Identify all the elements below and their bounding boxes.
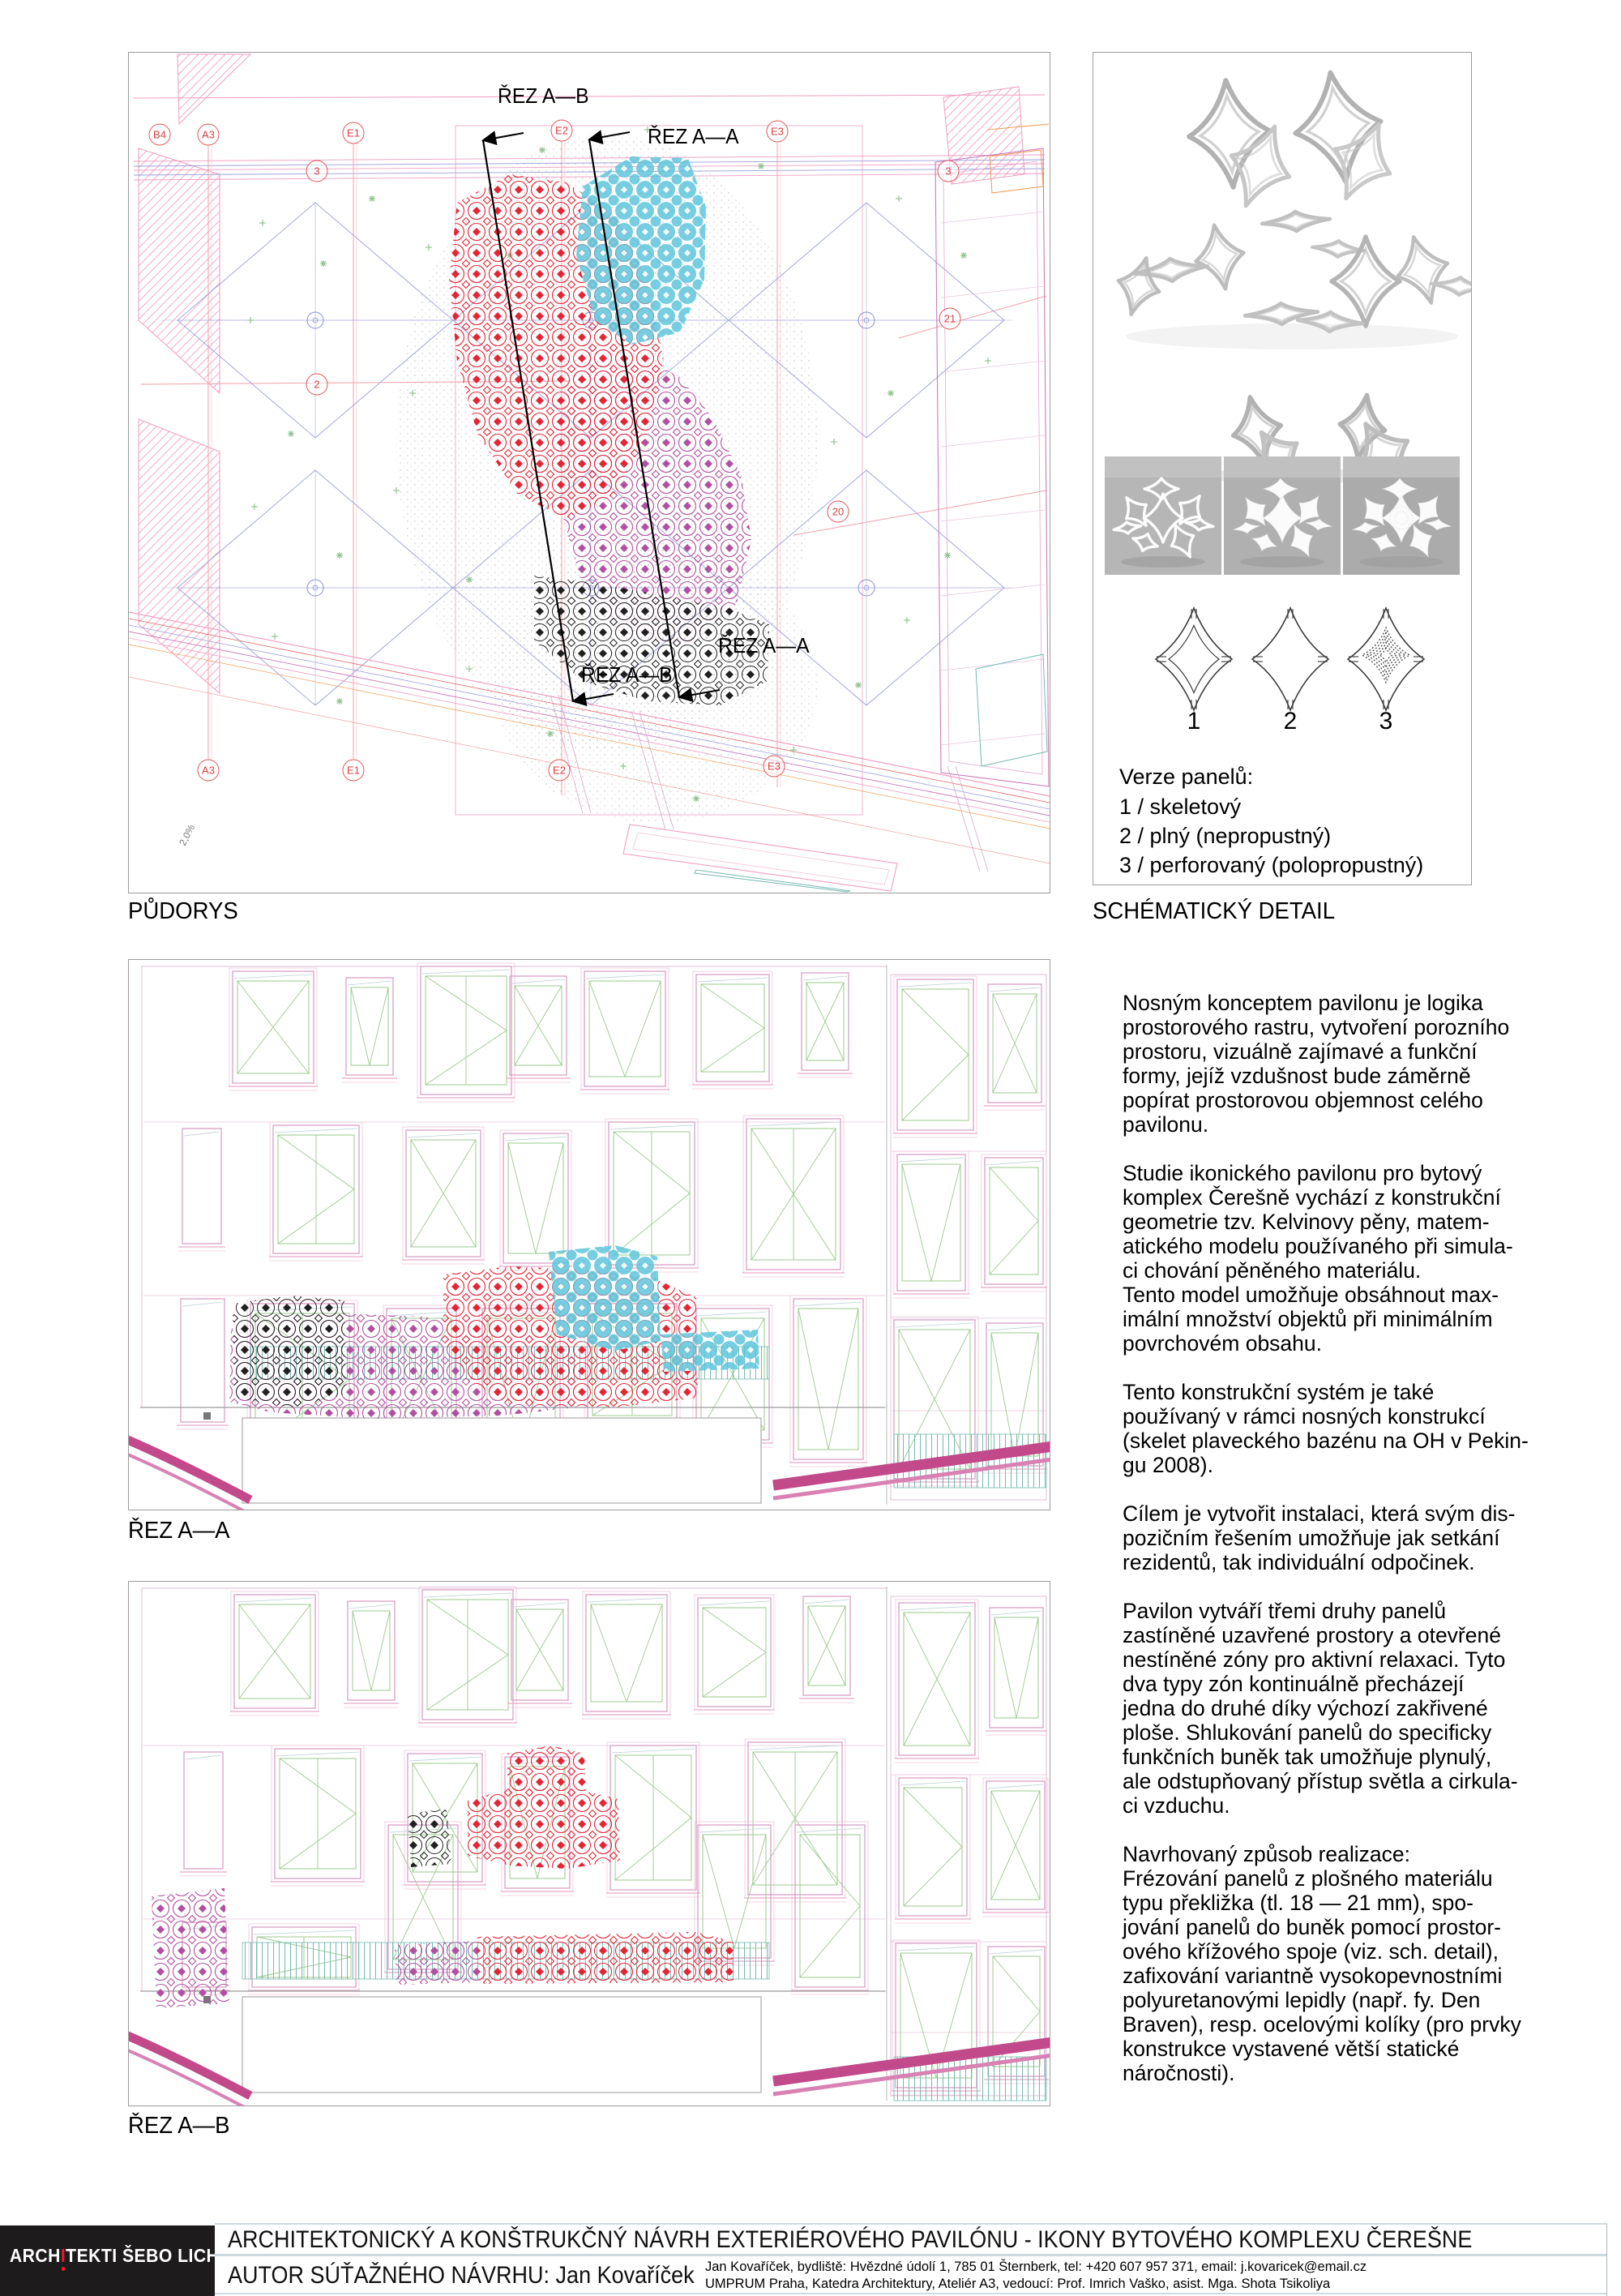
grid-marker: 3	[306, 161, 328, 182]
section-ab-caption: ŘEZ A—B	[128, 2113, 230, 2140]
paragraph-study: Studie ikonického pavilonu pro bytový ko…	[1123, 1161, 1619, 1356]
grid-marker: 21	[939, 308, 961, 330]
paragraph-system: Tento konstrukční systém je také používa…	[1123, 1380, 1619, 1477]
grid-marker: E2	[549, 760, 571, 782]
paragraph-goal: Cílem je vytvořit instalaci, která svým …	[1123, 1501, 1619, 1574]
grid-marker: E3	[763, 756, 785, 777]
floor-plan-drawing	[129, 53, 1050, 893]
panel-number-2: 2	[1272, 708, 1308, 735]
grid-marker: E1	[343, 760, 365, 782]
grid-marker: A3	[198, 760, 220, 782]
author-name: Jan Kovaříček	[556, 2262, 695, 2289]
logo-text-suffix: TEKTI ŠEBO LICHÝ	[66, 2245, 231, 2266]
contact-line-1: Jan Kovaříček, bydliště: Hvězdné údolí 1…	[705, 2259, 1367, 2276]
plan-caption: PŮDORYS	[128, 898, 238, 925]
floor-plan-panel: B4 A3 E1 E2 E3 3 3 2 21 20 A3 E1 E2 E3 Ř…	[128, 52, 1050, 893]
section-line-label-ab-bottom: ŘEZ A—B	[581, 662, 673, 688]
paragraph-concept: Nosným konceptem pavilonu je logika pros…	[1123, 991, 1619, 1137]
section-line-label-ab-top: ŘEZ A—B	[498, 84, 589, 109]
grid-marker: E3	[767, 121, 789, 143]
schematic-caption: SCHÉMATICKÝ DETAIL	[1093, 898, 1335, 925]
schematic-detail-panel: 1 2 3 Verze panelů: 1 / skeletový 2 / pl…	[1093, 52, 1472, 885]
author-line: AUTOR SÚŤAŽNÉHO NÁVRHU: Jan Kovaříček	[228, 2260, 746, 2292]
title-bar-row2: AUTOR SÚŤAŽNÉHO NÁVRHU: Jan Kovaříček Ja…	[215, 2256, 1606, 2294]
grid-marker: 20	[828, 501, 849, 523]
section-aa-caption: ŘEZ A—A	[128, 1518, 230, 1544]
grid-marker: E2	[551, 120, 573, 142]
section-ab-drawing	[129, 1582, 1050, 2105]
section-line-label-aa-bottom: ŘEZ A—A	[718, 633, 810, 658]
panel-versions-list: 1 / skeletový 2 / plný (nepropustný) 3 /…	[1119, 792, 1423, 880]
panel-number-3: 3	[1368, 708, 1404, 735]
schematic-detail-drawing	[1093, 53, 1471, 885]
section-aa-panel	[128, 959, 1050, 1510]
studio-logo: ARCHITEKTI ŠEBO LICHÝ	[0, 2225, 215, 2296]
section-line-label-aa-top: ŘEZ A—A	[648, 124, 739, 149]
grid-marker: E1	[343, 122, 365, 144]
section-ab-panel	[128, 1581, 1050, 2106]
presentation-board: B4 A3 E1 E2 E3 3 3 2 21 20 A3 E1 E2 E3 Ř…	[0, 0, 1621, 2296]
contact-block: Jan Kovaříček, bydliště: Hvězdné údolí 1…	[705, 2259, 1367, 2293]
panel-versions-title: Verze panelů:	[1119, 765, 1253, 790]
grid-marker: B4	[149, 124, 171, 146]
panel-number-1: 1	[1176, 708, 1212, 735]
section-aa-drawing	[129, 960, 1050, 1510]
logo-text-prefix: ARCH	[10, 2245, 61, 2266]
paragraph-realization: Navrhovaný způsob realizace: Frézování p…	[1123, 1842, 1619, 2085]
grid-marker: 2	[306, 374, 328, 396]
project-title-text: ARCHITEKTONICKÝ A KONŠTRUKČNÝ NÁVRH EXTE…	[228, 2225, 1472, 2255]
paragraph-zones: Pavilon vytváří třemi druhy panelů zastí…	[1123, 1599, 1619, 1818]
project-title: ARCHITEKTONICKÝ A KONŠTRUKČNÝ NÁVRH EXTE…	[215, 2225, 1606, 2254]
contact-line-2: UMPRUM Praha, Katedra Architektury, Atel…	[705, 2276, 1367, 2293]
description-text-column: Nosným konceptem pavilonu je logika pros…	[1123, 991, 1619, 2110]
grid-marker: A3	[198, 124, 220, 146]
title-bar: ARCHITEKTONICKÝ A KONŠTRUKČNÝ NÁVRH EXTE…	[215, 2223, 1607, 2296]
grid-marker: 3	[938, 161, 960, 182]
logo-accent-letter: I	[61, 2245, 66, 2266]
author-label: AUTOR SÚŤAŽNÉHO NÁVRHU:	[228, 2262, 550, 2289]
title-block: ARCHITEKTI ŠEBO LICHÝ ARCHITEKTONICKÝ A …	[0, 2223, 1621, 2296]
